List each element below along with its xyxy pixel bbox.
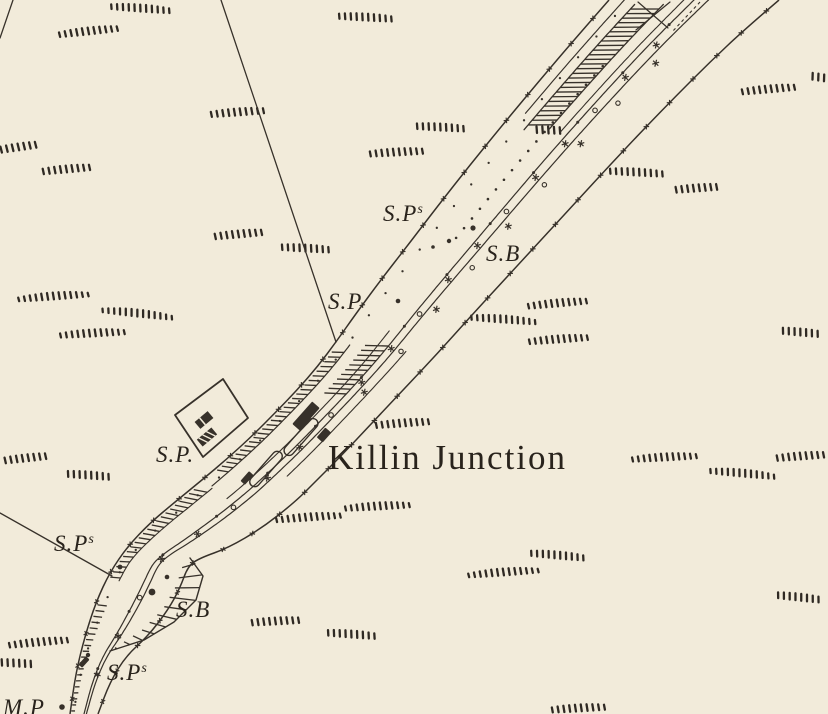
map-canvas: S.Ps S.B S.P S.P. S.Ps S.B S.Ps M.P Kill… [0, 0, 828, 714]
signal-box-label-upper: S.B [486, 241, 520, 266]
signal-box-label-lower: S.B [176, 597, 210, 622]
mile-post-label: M.P [2, 695, 45, 714]
paper-background [0, 0, 828, 714]
signal-post-label-station: S.P. [156, 442, 194, 467]
killin-junction-map: S.Ps S.B S.P S.P. S.Ps S.B S.Ps M.P Kill… [0, 0, 828, 714]
signal-post-label-mid: S.P [328, 289, 362, 314]
station-name-label: Killin Junction [328, 438, 567, 477]
